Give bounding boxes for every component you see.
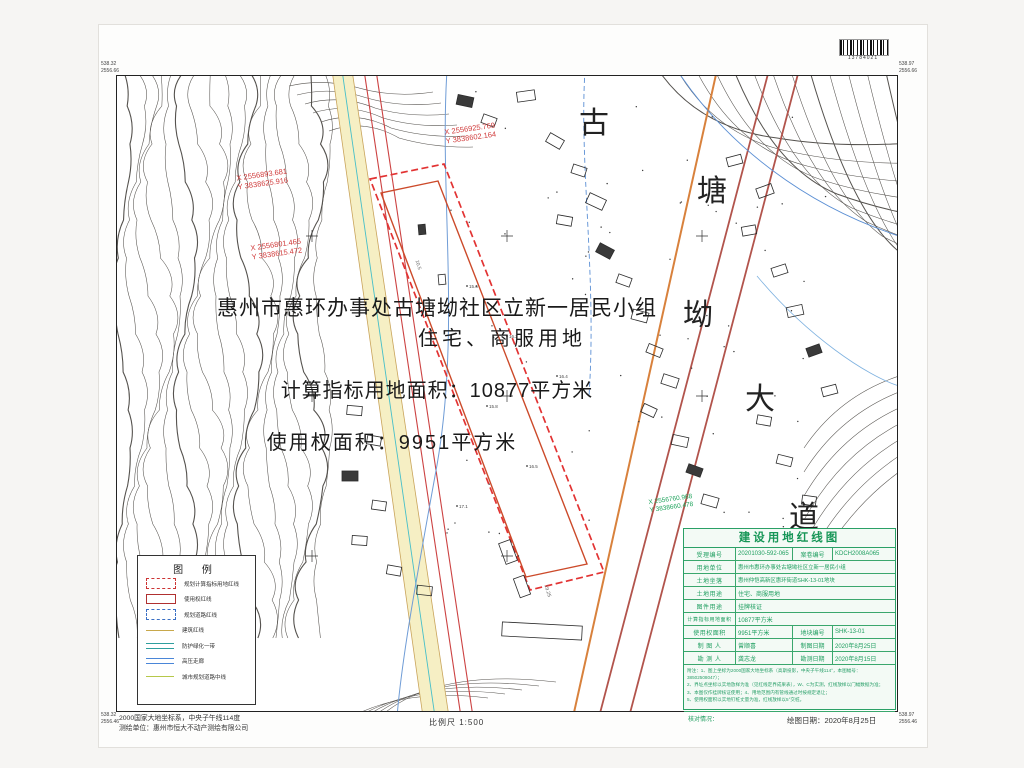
screenshot-canvas: 13784021 15.616.215.816.517.116.4 惠州市惠环办…: [0, 0, 1024, 768]
place-name-char: 古: [579, 98, 609, 142]
datum-note: 2000国家大地坐标系，中央子午线114度 测绘单位：惠州市恒大不动产测绘有限公…: [119, 714, 248, 734]
redline-info-table: 建设用地红线图 受理编号 20201030-592-065 案卷编号 KDCH2…: [683, 528, 896, 710]
cell-value: 20201030-592-065: [736, 548, 793, 560]
draw-date-label: 绘图日期：2020年8月25日: [787, 715, 876, 726]
cell-label: 制图日期: [793, 639, 833, 651]
cell-label: 图件用途: [684, 600, 736, 612]
cell-label: 勘 测 人: [684, 652, 736, 664]
table-notes: 附注：1、图上坐标为2000国家大地坐标系（高斯投影，中央子午线114°，本图幅…: [684, 665, 895, 712]
cell-value: 住宅、商服用地: [736, 587, 895, 599]
legend-item: 防护绿化一带: [138, 638, 255, 654]
red-solid-rect-swatch: [146, 594, 176, 604]
place-name-char: 大: [745, 374, 775, 418]
legend-item: 规划计算指标用地红线: [138, 576, 255, 592]
table-row: 土地用途 住宅、商服用地: [684, 587, 895, 600]
datum-line: 2000国家大地坐标系，中央子午线114度: [119, 714, 248, 724]
svg-text:16.5: 16.5: [529, 464, 538, 469]
cell-label: 勘测日期: [793, 652, 833, 664]
cell-label: 土地用途: [684, 587, 736, 599]
place-name-char: 坳: [683, 290, 713, 334]
headline-useright-area: 使用权面积：9951平方米: [197, 426, 587, 455]
cell-value: 曾顺喜: [736, 639, 793, 651]
cell-label: 受理编号: [684, 548, 736, 560]
headline-landuse: 住宅、商服用地: [367, 322, 637, 351]
cell-label: 案卷编号: [793, 548, 833, 560]
svg-text:17.1: 17.1: [459, 504, 468, 509]
cell-value: SHK-13-01: [833, 626, 895, 638]
cell-value: 9951平方米: [736, 626, 793, 638]
legend-title: 图 例: [138, 561, 255, 576]
cell-value: 挂牌核证: [736, 600, 895, 612]
legend-label: 规划计算指标用地红线: [184, 580, 239, 588]
legend-label: 城市规划道路中线: [182, 673, 226, 681]
cell-value: 龚志龙: [736, 652, 793, 664]
legend-label: 使用权红线: [184, 595, 212, 603]
legend-label: 规划道路红线: [184, 611, 217, 619]
table-row: 使用权面积 9951平方米 地块编号 SHK-13-01: [684, 626, 895, 639]
cell-label: 土地坐落: [684, 574, 736, 586]
red-dashed-rect-swatch: [146, 578, 176, 589]
cell-label: 计算指标用地面积: [684, 613, 736, 625]
cell-label: 用地单位: [684, 561, 736, 573]
yellow-green-line-swatch: [146, 676, 174, 677]
corner-label-tl: 538.322556.66: [101, 61, 115, 74]
table-row: 用地单位 惠州市惠环办事处古塘坳社区立新一居民小组: [684, 561, 895, 574]
corner-label-tr: 538.972556.66: [899, 61, 913, 74]
legend-label: 防护绿化一带: [182, 642, 215, 650]
cell-label: 地块编号: [793, 626, 833, 638]
legend-item: 建筑红线: [138, 623, 255, 639]
scale-label: 比例尺 1:500: [429, 717, 484, 728]
map-sheet: 13784021 15.616.215.816.517.116.4 惠州市惠环办…: [98, 24, 928, 748]
cell-value: KDCH2008A065: [833, 548, 895, 560]
legend-label: 高压走廊: [182, 657, 204, 665]
corner-label-br: 538.972556.46: [899, 712, 913, 725]
table-row: 制 图 人 曾顺喜 制图日期 2020年8月25日: [684, 639, 895, 652]
cell-value: 2020年8月15日: [833, 652, 895, 664]
table-row: 土地坐落 惠州仲恺高新区惠环街道SHK-13-01地块: [684, 574, 895, 587]
headline-indicator-area: 计算指标用地面积：10877平方米: [217, 374, 657, 403]
table-row: 图件用途 挂牌核证: [684, 600, 895, 613]
legend-item: 规划道路红线: [138, 607, 255, 623]
survey-unit-line: 测绘单位：惠州市恒大不动产测绘有限公司: [119, 724, 248, 734]
legend-item: 城市规划道路中线: [138, 669, 255, 685]
blue-double-line-swatch: [146, 658, 174, 664]
legend-label: 建筑红线: [182, 626, 204, 634]
barcode-number: 13784021: [839, 55, 887, 61]
cell-value: 10877平方米: [736, 613, 895, 625]
barcode: [839, 39, 889, 56]
svg-text:15.8: 15.8: [489, 404, 498, 409]
blue-dashed-rect-swatch: [146, 609, 176, 620]
legend: 图 例 规划计算指标用地红线 使用权红线 规划道路红线 建筑红线: [137, 555, 256, 705]
cell-label: 使用权面积: [684, 626, 736, 638]
cell-value: 惠州仲恺高新区惠环街道SHK-13-01地块: [736, 574, 895, 586]
tan-line-swatch: [146, 630, 174, 631]
table-title: 建设用地红线图: [684, 529, 895, 548]
cell-value: 2020年8月25日: [833, 639, 895, 651]
cell-label: 制 图 人: [684, 639, 736, 651]
corner-label-bl: 538.322556.46: [101, 712, 115, 725]
table-row: 受理编号 20201030-592-065 案卷编号 KDCH2008A065: [684, 548, 895, 561]
legend-item: 使用权红线: [138, 592, 255, 608]
place-name-char: 塘: [697, 166, 727, 210]
table-row: 计算指标用地面积 10877平方米: [684, 613, 895, 626]
legend-item: 高压走廊: [138, 654, 255, 670]
headline-owner: 惠州市惠环办事处古塘坳社区立新一居民小组: [157, 292, 717, 322]
teal-double-line-swatch: [146, 643, 174, 649]
table-row: 勘 测 人 龚志龙 勘测日期 2020年8月15日: [684, 652, 895, 665]
cell-value: 惠州市惠环办事处古塘坳社区立新一居民小组: [736, 561, 895, 573]
